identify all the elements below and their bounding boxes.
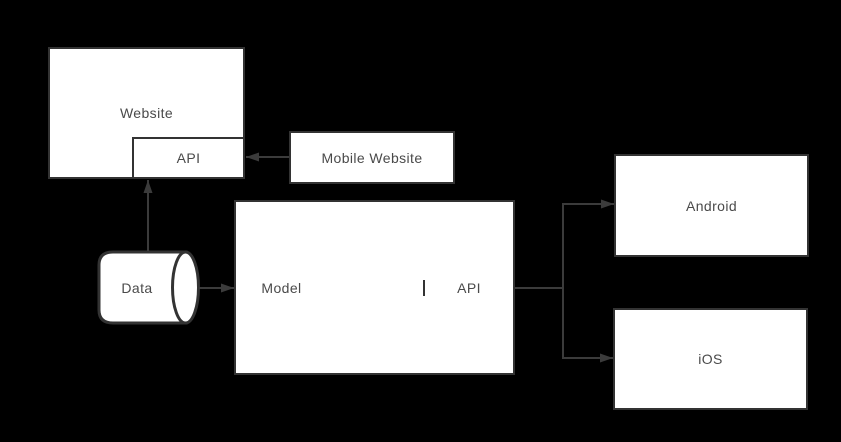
diagram-canvas: Website API Mobile Website Data Model AP…: [0, 0, 841, 442]
node-ios-label: iOS: [698, 351, 723, 367]
node-website-api: API: [132, 137, 245, 179]
backend-section-model: Model: [236, 280, 327, 296]
connector-backend-api-to-android: [563, 204, 614, 288]
node-mobile-website-label: Mobile Website: [321, 150, 422, 166]
node-ios: iOS: [613, 308, 808, 410]
backend-section-api: API: [423, 280, 513, 296]
node-android-label: Android: [686, 198, 737, 214]
backend-section-api-label: API: [457, 280, 481, 296]
node-backend: Model API: [234, 200, 515, 375]
data-cylinder-end: [173, 252, 199, 323]
node-android: Android: [614, 154, 809, 257]
node-website-label: Website: [120, 105, 173, 121]
node-mobile-website: Mobile Website: [289, 131, 455, 184]
backend-section-model-label: Model: [261, 280, 301, 296]
node-data-store: Data: [99, 252, 175, 323]
node-website-api-label: API: [177, 150, 201, 166]
connector-backend-api-to-ios: [563, 288, 613, 358]
node-data-store-label: Data: [121, 280, 152, 296]
